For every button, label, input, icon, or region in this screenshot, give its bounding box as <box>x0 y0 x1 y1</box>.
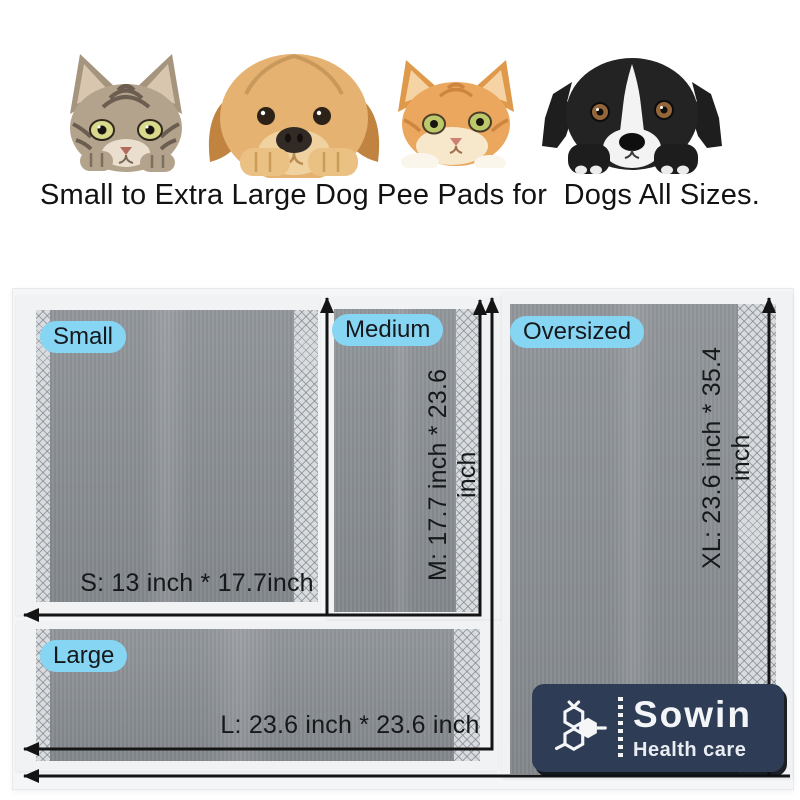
border-collie-icon <box>536 42 728 178</box>
brand-name: Sowin <box>633 696 752 733</box>
headline: Small to Extra Large Dog Pee Pads for Do… <box>0 179 800 212</box>
small-label-pill: Small <box>40 321 126 353</box>
medium-dimension-text: M: 17.7 inch * 23.6 inch <box>424 344 482 606</box>
brand-tagline: Health care <box>633 740 752 760</box>
crosshatch-edge <box>36 310 50 602</box>
crosshatch-edge <box>454 629 480 761</box>
brand-logo: Sowin Health care <box>532 684 784 772</box>
product-infographic: Small to Extra Large Dog Pee Pads for Do… <box>0 0 800 800</box>
tabby-cat-icon <box>60 48 192 172</box>
crosshatch-edge <box>294 310 318 602</box>
large-dimension-text: L: 23.6 inch * 23.6 inch <box>190 711 510 740</box>
golden-retriever-icon <box>196 36 392 178</box>
small-dimension-text: S: 13 inch * 17.7inch <box>57 569 337 598</box>
hexagon-molecule-icon <box>544 695 610 761</box>
logo-divider-ticks <box>618 697 623 759</box>
orange-cat-icon <box>390 50 522 168</box>
medium-label-pill: Medium <box>332 314 443 346</box>
oversized-label-pill: Oversized <box>510 316 644 348</box>
large-label-pill: Large <box>40 640 127 672</box>
small-pad-core <box>36 310 318 602</box>
oversized-dimension-text: XL: 23.6 inch * 35.4 inch <box>698 325 756 591</box>
